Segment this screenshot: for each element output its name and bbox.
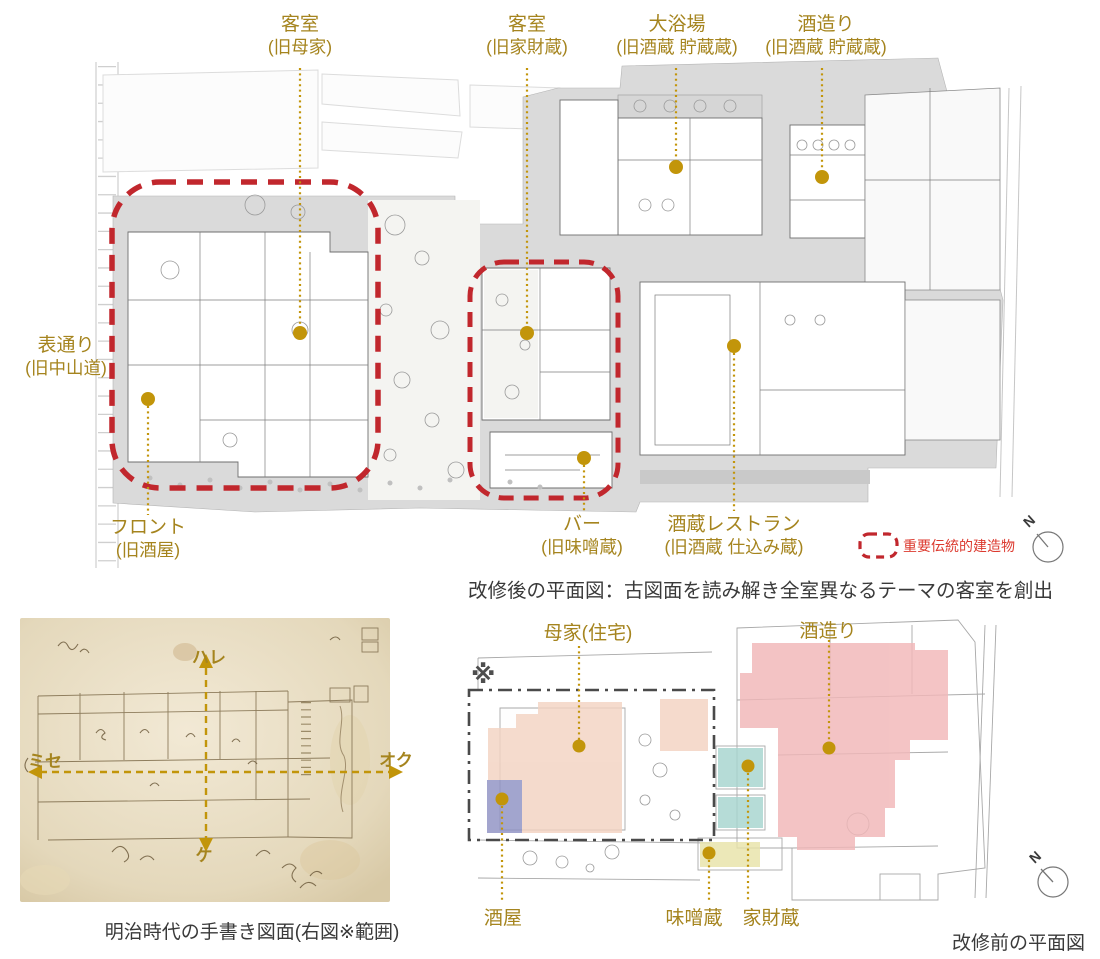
label-guest-room-kazaigura: 客室 (旧家財蔵) xyxy=(486,13,568,59)
figure-page: 客室 (旧母家) 客室 (旧家財蔵) 大浴場 (旧酒蔵 貯蔵蔵) 酒造り (旧酒… xyxy=(0,0,1100,959)
label-line: 客室 xyxy=(486,13,568,36)
label-line: 大浴場 xyxy=(616,13,738,36)
label-line: (旧酒蔵 仕込み蔵) xyxy=(664,536,803,559)
label-front-desk: フロント (旧酒屋) xyxy=(110,516,186,562)
label-main-house-before: 母家(住宅) xyxy=(544,618,633,645)
compass-icon-before xyxy=(1038,867,1068,897)
label-front-street: 表通り (旧中山道) xyxy=(25,334,107,380)
label-line: (旧酒蔵 貯蔵蔵) xyxy=(616,36,738,59)
compass-icon-after xyxy=(1033,532,1063,562)
axis-label-mise: ミセ xyxy=(28,747,62,772)
building-omoya xyxy=(128,232,368,477)
after-plan-graphic xyxy=(96,58,1063,568)
label-line: (旧母家) xyxy=(268,36,332,59)
label-line: 酒蔵レストラン xyxy=(664,513,803,536)
building-restaurant xyxy=(640,282,905,455)
axis-label-hare: ハレ xyxy=(192,643,226,668)
axis-label-oku: オク xyxy=(379,746,413,771)
label-line: 酒造り xyxy=(765,13,887,36)
legend-label: 重要伝統的建造物 xyxy=(903,536,1015,556)
label-line: (旧酒屋) xyxy=(110,539,186,562)
overlay-sake-shop xyxy=(487,780,522,833)
range-marker: ※ xyxy=(471,660,495,690)
before-plan-caption: 改修前の平面図 xyxy=(945,928,1085,955)
overlay-storehouse-1 xyxy=(718,748,763,787)
before-plan-overlays xyxy=(487,643,948,867)
label-bath: 大浴場 (旧酒蔵 貯蔵蔵) xyxy=(616,13,738,59)
label-restaurant: 酒蔵レストラン (旧酒蔵 仕込み蔵) xyxy=(664,513,803,559)
label-line: フロント xyxy=(110,516,186,539)
label-brewing-before: 酒造り xyxy=(799,616,856,643)
label-guest-room-omoya: 客室 (旧母家) xyxy=(268,13,332,59)
label-line: バー xyxy=(541,513,623,536)
label-family-storehouse: 家財蔵 xyxy=(742,903,799,930)
label-brewing-after: 酒造り (旧酒蔵 貯蔵蔵) xyxy=(765,13,887,59)
figure-graphics xyxy=(0,0,1100,959)
label-sake-shop: 酒屋 xyxy=(484,903,522,930)
overlay-main-house-annex xyxy=(660,699,708,751)
axis-label-ke: ケ xyxy=(196,841,213,866)
label-line: 表通り xyxy=(25,334,107,357)
before-plan-graphic xyxy=(469,620,1068,902)
after-plan-caption: 改修後の平面図：古図面を読み解き全室異なるテーマの客室を創出 xyxy=(453,574,1053,603)
label-bar: バー (旧味噌蔵) xyxy=(541,513,623,559)
building-bar xyxy=(490,432,612,488)
label-line: 客室 xyxy=(268,13,332,36)
label-line: (旧酒蔵 貯蔵蔵) xyxy=(765,36,887,59)
old-map-caption: 明治時代の手書き図面(右図※範囲) xyxy=(102,917,402,944)
label-line: (旧中山道) xyxy=(25,357,107,380)
label-miso-storehouse: 味噌蔵 xyxy=(665,903,722,930)
overlay-storehouse-2 xyxy=(718,797,763,828)
label-line: (旧味噌蔵) xyxy=(541,536,623,559)
label-line: (旧家財蔵) xyxy=(486,36,568,59)
